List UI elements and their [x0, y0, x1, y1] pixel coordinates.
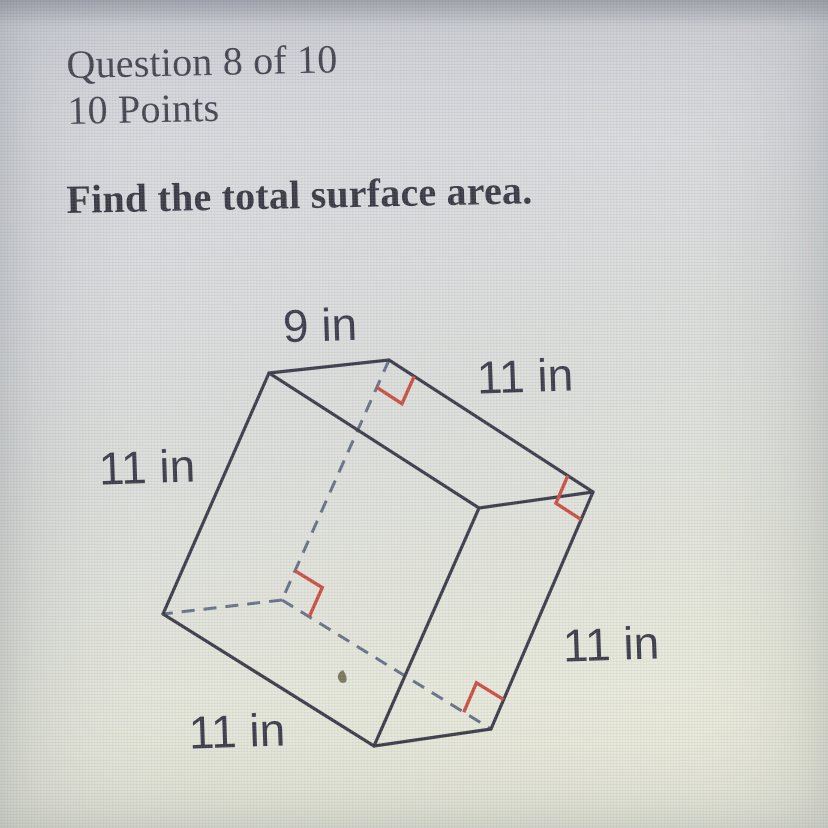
right-angle-mark-H — [464, 683, 504, 712]
dim-label-bottom-11in: 11 in — [188, 703, 286, 758]
dim-label-top-9in: 9 in — [282, 298, 358, 353]
edge-CH — [491, 492, 593, 729]
right-angle-mark-F — [295, 571, 322, 617]
hidden-edge-FE — [163, 600, 282, 614]
edge-GH — [374, 729, 491, 746]
hidden-edge-BF — [282, 360, 389, 600]
question-page: Question 8 of 10 10 Points Find the tota… — [0, 0, 828, 828]
dim-label-topright-11in: 11 in — [476, 348, 574, 403]
edge-DA — [269, 373, 479, 508]
edge-AE — [163, 373, 269, 614]
edge-CD — [479, 492, 593, 508]
prism-diagram: 9 in11 in11 in11 in11 in — [0, 0, 828, 828]
dim-label-left-11in: 11 in — [98, 439, 196, 494]
right-angle-mark-B — [377, 376, 414, 403]
edge-AB — [269, 360, 389, 373]
dim-label-right-11in: 11 in — [562, 616, 660, 671]
dust-speck — [338, 670, 347, 683]
